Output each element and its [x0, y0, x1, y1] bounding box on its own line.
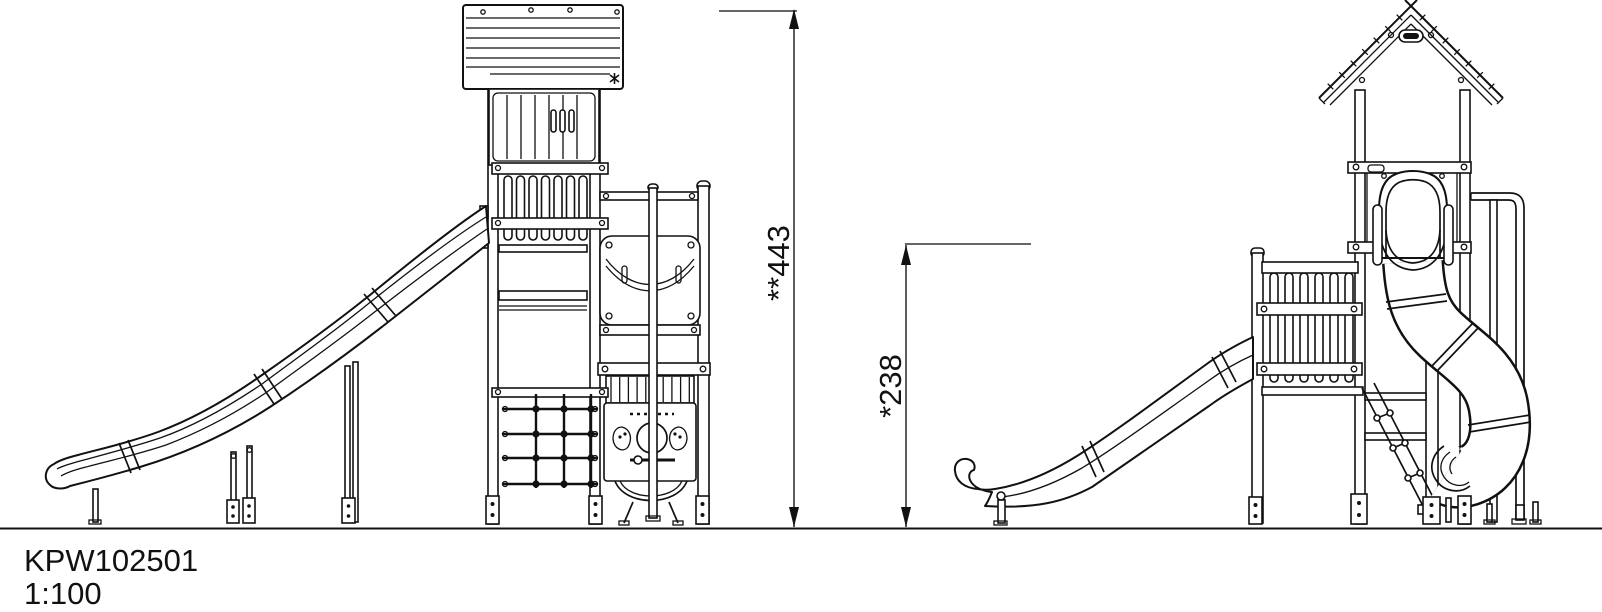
bolt	[1382, 174, 1387, 179]
dimensions: **443 *238	[719, 9, 1031, 527]
title-block: KPW102501 1:100	[24, 543, 198, 611]
anchor-bolt	[1430, 514, 1434, 518]
slide-end-support	[998, 500, 1005, 523]
anchor-plate	[227, 500, 239, 523]
gable-roof	[1319, 0, 1503, 105]
side-slide	[955, 337, 1253, 525]
anchor-bolt	[594, 502, 598, 506]
roof-slope-mid	[1324, 15, 1411, 102]
anchor-plate	[1423, 497, 1440, 524]
anchors-left	[486, 496, 709, 524]
cabin-vent-slot	[569, 110, 574, 132]
entrance-handle	[1444, 205, 1453, 265]
net-knot	[560, 454, 567, 461]
tube-slide	[1386, 262, 1531, 491]
bowl-leg	[624, 502, 633, 523]
railing-beam-mid	[492, 218, 608, 229]
platform-fence	[1251, 248, 1363, 523]
fence-top-rail	[1262, 262, 1358, 273]
anchor-bolt	[701, 502, 705, 506]
anchor-bolt	[701, 513, 705, 517]
cabin-vent-slot	[560, 110, 565, 132]
baluster	[554, 176, 562, 240]
tube-leg	[1446, 498, 1451, 522]
access-ladder	[1362, 383, 1436, 514]
handle-knob	[634, 456, 642, 464]
frame-rail	[1365, 433, 1426, 440]
roof-slope-mid	[1411, 15, 1498, 102]
mask-eye	[623, 432, 626, 435]
climbing-net	[492, 388, 608, 488]
support-bolt	[997, 492, 1005, 500]
rung-bolt	[1405, 475, 1411, 481]
net-knot	[560, 430, 567, 437]
anchor-bolt	[347, 504, 351, 508]
anchor-bolt	[247, 504, 251, 508]
anchor-plate	[696, 496, 709, 524]
net-knot	[587, 454, 594, 461]
net-knot	[532, 405, 539, 412]
rung-bolt	[1387, 410, 1393, 416]
railing-beam-top	[492, 163, 608, 174]
anchors-right	[1249, 494, 1471, 524]
rung-bolt	[1417, 470, 1423, 476]
rung-bolt	[1374, 415, 1380, 421]
drawing-number-label: KPW102501	[24, 543, 198, 578]
bolt	[1459, 78, 1464, 83]
anchor-bolt	[1463, 513, 1467, 517]
arrow-up	[901, 245, 911, 265]
tube-leg	[1487, 504, 1492, 522]
baluster	[542, 176, 550, 240]
slide-leg	[93, 489, 98, 522]
mask-eye	[673, 432, 676, 435]
anchor-plate	[486, 496, 499, 524]
platform-floor-edge	[499, 245, 587, 252]
tube-leg	[1533, 502, 1538, 522]
rung-bolt	[1390, 445, 1396, 451]
arrow-up	[789, 9, 799, 29]
cabin-vent-slot	[551, 110, 556, 132]
anchor-bolt	[247, 514, 251, 518]
net-ropes	[503, 394, 598, 488]
frame-rail	[1365, 393, 1426, 400]
anchor-bolt	[231, 505, 235, 509]
bay-post	[698, 186, 709, 524]
fence-low-rail	[1257, 363, 1362, 375]
tower-cabin	[489, 89, 599, 165]
anchor-plate	[243, 498, 255, 523]
bowl-leg	[669, 502, 678, 523]
cabin-frame	[489, 89, 599, 165]
roof-slope-outer	[1319, 0, 1417, 98]
anchor-bolt	[1357, 513, 1361, 517]
net-knot	[560, 480, 567, 487]
roof-shingle-ticks	[1328, 15, 1495, 90]
scale-label: 1:100	[24, 576, 102, 611]
rung-bolt	[1402, 440, 1408, 446]
net-knot	[532, 480, 539, 487]
roof-slope-outer	[1405, 0, 1503, 98]
platform-height-value: *238	[873, 354, 908, 418]
anchor-bolt	[594, 513, 598, 517]
anchor-bolt	[491, 502, 495, 506]
playground-technical-drawing: **443 *238 KPW102501 1:100	[0, 0, 1602, 612]
anchor-bolt	[347, 514, 351, 518]
slide-body	[46, 206, 489, 489]
slide-entrance-hood	[1373, 171, 1453, 270]
left-elevation	[46, 5, 710, 525]
anchor-bolt	[1463, 502, 1467, 506]
anchor-plate	[589, 496, 602, 524]
anchor-plate	[1351, 494, 1367, 524]
tower-roof	[463, 5, 623, 89]
baluster	[504, 176, 512, 240]
net-knot	[560, 405, 567, 412]
baluster	[529, 176, 537, 240]
baluster	[567, 176, 575, 240]
roof-vent-slot	[1403, 33, 1419, 39]
baluster	[579, 176, 587, 240]
pole-lower	[1516, 505, 1524, 520]
baluster	[517, 176, 525, 240]
net-knot	[532, 430, 539, 437]
right-elevation	[955, 0, 1541, 525]
entrance-handle	[1373, 205, 1382, 265]
platform-floor	[1262, 387, 1363, 395]
fence-mid-rail	[1257, 303, 1362, 315]
anchor-bolt	[1357, 501, 1361, 505]
activity-bay	[598, 181, 710, 525]
slide-body	[955, 337, 1253, 507]
anchor-plate	[1249, 497, 1262, 524]
mask-eye	[618, 435, 621, 438]
bolt	[1360, 78, 1365, 83]
net-knot	[587, 405, 594, 412]
dimension-platform-height: *238	[873, 244, 1031, 527]
open-slide	[46, 206, 489, 489]
anchor-bolt	[1254, 503, 1258, 507]
drawing-sheet: **443 *238 KPW102501 1:100	[0, 0, 1602, 612]
arrow-down	[789, 507, 799, 527]
arrow-down	[901, 507, 911, 527]
pole-shaft	[649, 188, 657, 518]
anchor-bolt	[1254, 514, 1258, 518]
dimension-overall-height: **443	[719, 9, 799, 527]
balusters	[504, 176, 587, 240]
mask-eye	[678, 435, 681, 438]
overall-height-value: **443	[761, 225, 796, 301]
anchor-bolt	[491, 513, 495, 517]
anchor-plate	[342, 498, 355, 523]
anchor-plate	[1458, 496, 1471, 524]
bolt	[1440, 174, 1445, 179]
net-knot	[532, 454, 539, 461]
anchor-bolt	[1430, 503, 1434, 507]
net-knot	[587, 430, 594, 437]
anchor-bolt	[231, 514, 235, 518]
net-knot	[587, 480, 594, 487]
lower-rail	[499, 291, 587, 300]
